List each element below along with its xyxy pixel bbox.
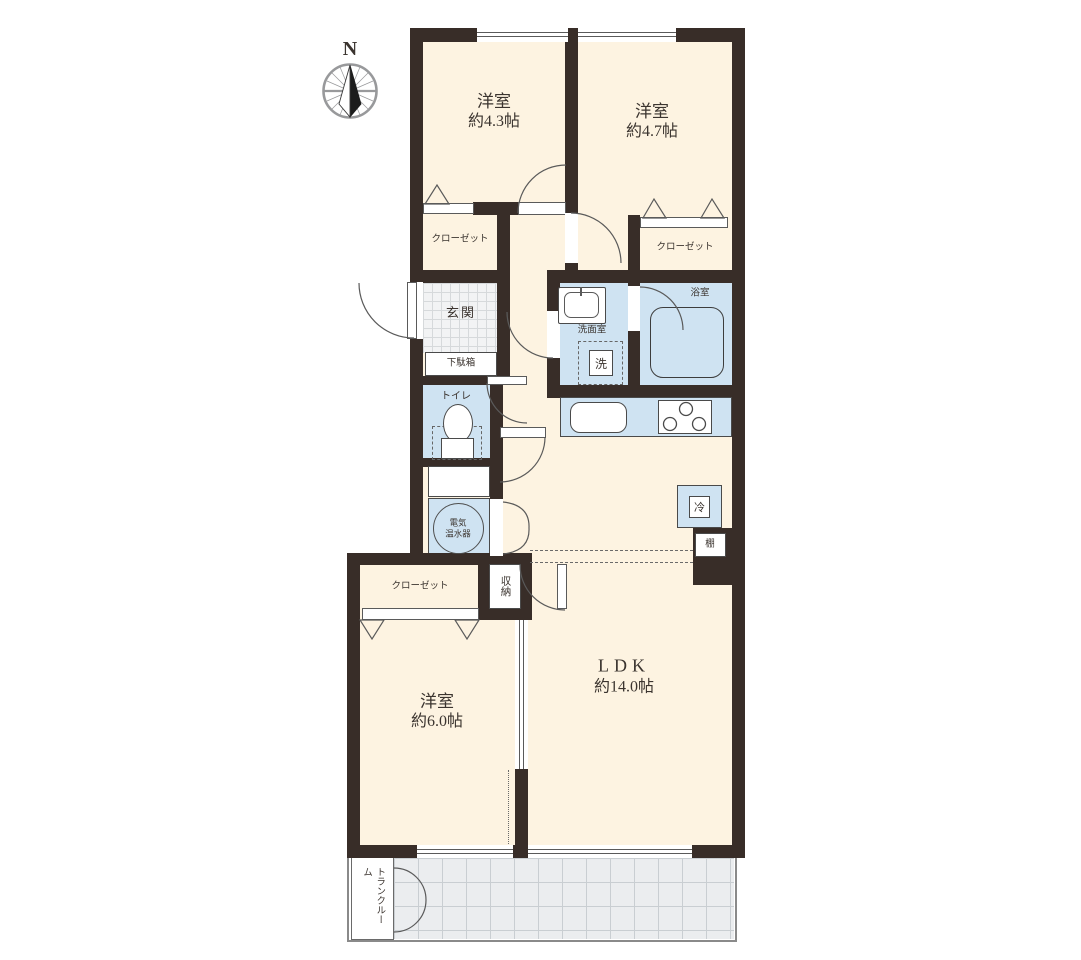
trunk-room-label: トランクルーム bbox=[359, 867, 386, 929]
entrance-label: 玄関 bbox=[446, 305, 476, 321]
ldk-south-door-leaf bbox=[557, 564, 567, 609]
refrigerator-label-box: 冷 bbox=[689, 496, 710, 518]
closet3-track bbox=[362, 608, 479, 620]
shelf-label: 棚 bbox=[705, 539, 715, 550]
wall bbox=[565, 42, 578, 213]
ldk-boundary-dash bbox=[530, 550, 693, 551]
closet1-label: クローゼット bbox=[431, 234, 488, 245]
wall bbox=[515, 768, 528, 845]
wall bbox=[473, 202, 518, 215]
wall bbox=[547, 385, 745, 397]
closet2-label: クローゼット bbox=[656, 242, 713, 253]
bedroom2-door-opening bbox=[565, 213, 578, 263]
closet3-label: クローゼット bbox=[391, 581, 448, 592]
wall bbox=[547, 270, 745, 283]
wall-dash bbox=[508, 770, 509, 844]
bathroom-door-opening bbox=[628, 286, 640, 331]
heater-closet-opening bbox=[490, 499, 503, 556]
closet2-track bbox=[640, 217, 728, 228]
balcony-tile bbox=[394, 858, 734, 939]
shoe-cabinet-label: 下駄箱 bbox=[447, 358, 476, 369]
bedroom1-door-leaf bbox=[518, 202, 566, 215]
entrance-door-leaf bbox=[407, 282, 417, 339]
bathroom-label: 浴室 bbox=[690, 288, 709, 299]
wall bbox=[410, 270, 510, 283]
window bbox=[477, 28, 568, 42]
kitchen-sink-icon bbox=[570, 402, 627, 433]
wall bbox=[732, 28, 745, 858]
lower-floor-area bbox=[347, 553, 732, 858]
ldk-boundary-dash bbox=[530, 562, 693, 563]
ldk-label: LDK 約14.0帖 bbox=[594, 656, 654, 697]
compass-icon bbox=[320, 60, 380, 122]
washer-label: 洗 bbox=[595, 355, 607, 372]
washroom-label: 洗面室 bbox=[578, 325, 607, 336]
stove-icon bbox=[658, 400, 712, 434]
floor-plan: 洗 冷 bbox=[0, 0, 1081, 960]
hall-door-leaf bbox=[487, 376, 527, 385]
window bbox=[417, 845, 513, 858]
wall bbox=[478, 608, 532, 620]
refrigerator-label: 冷 bbox=[694, 499, 705, 515]
entrance-door-arc bbox=[359, 283, 414, 338]
washbasin-tap-icon bbox=[580, 287, 582, 296]
water-heater-label: 電気 温水器 bbox=[445, 517, 471, 538]
wall bbox=[497, 283, 510, 376]
wall bbox=[628, 215, 640, 270]
storage-label: 収納 bbox=[498, 576, 513, 597]
bedroom3-label: 洋室 約6.0帖 bbox=[411, 692, 463, 732]
bedroom1-label: 洋室 約4.3帖 bbox=[468, 92, 520, 132]
bedroom2-label: 洋室 約4.7帖 bbox=[626, 102, 678, 142]
closet1-track bbox=[423, 203, 474, 214]
sliding-door bbox=[515, 620, 528, 769]
compass-north-label: N bbox=[343, 37, 357, 61]
window bbox=[578, 28, 676, 42]
wall bbox=[490, 385, 503, 499]
bathtub-icon bbox=[650, 307, 724, 378]
window bbox=[528, 845, 692, 858]
toilet-tank-icon bbox=[441, 438, 474, 459]
toilet-label: トイレ bbox=[441, 391, 471, 403]
wall bbox=[347, 553, 360, 858]
washer-label-box: 洗 bbox=[589, 350, 613, 376]
ldk-door-leaf bbox=[500, 427, 546, 438]
hall-storage-box bbox=[428, 466, 490, 497]
